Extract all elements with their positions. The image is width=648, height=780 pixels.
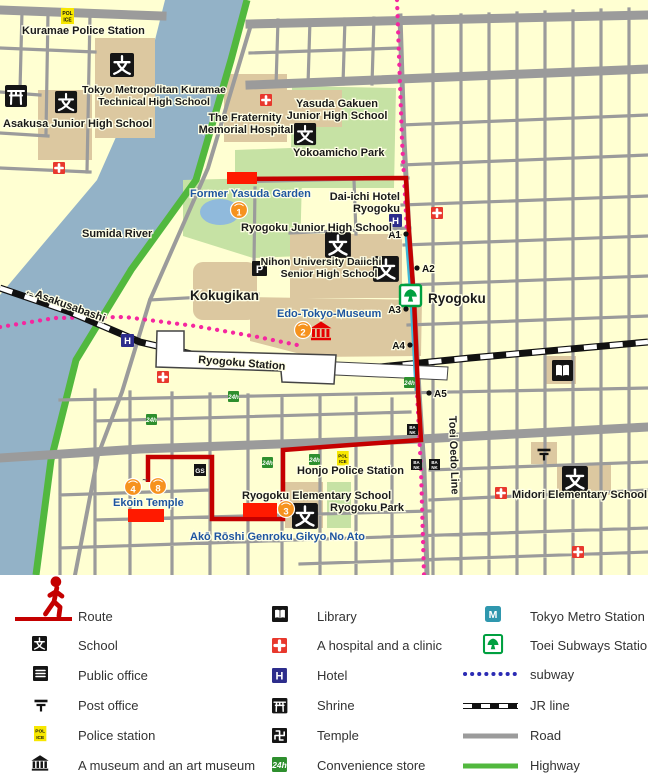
svg-text:4: 4	[130, 485, 136, 496]
legend-label-road: Road	[530, 728, 561, 743]
spot-marker-3: 3	[278, 501, 295, 518]
exit-dot-a3	[403, 306, 408, 311]
legend-label-subway: subway	[530, 667, 575, 682]
svg-text:8: 8	[155, 484, 160, 495]
label-fraternity-2: Memorial Hospital	[199, 124, 294, 136]
exit-label-a2: A2	[422, 264, 435, 275]
highlight-ekoin-temple	[128, 509, 164, 522]
legend-label-museum: A museum and an art museum	[78, 758, 255, 773]
label-ryogoku-toei: Ryogoku	[428, 291, 486, 306]
label-ryogoku-jhs: Ryogoku Junior High School	[241, 222, 392, 234]
svg-text:1: 1	[236, 208, 242, 219]
label-former-yasuda-garden: Former Yasuda Garden	[190, 188, 311, 200]
toei-station-icon	[484, 635, 502, 653]
shrine-icon	[5, 85, 27, 107]
spot-marker-2: 2	[295, 322, 312, 339]
label-kuramae-tech-1: Tokyo Metropolitan Kuramae	[82, 84, 226, 96]
hotel-icon	[121, 334, 134, 347]
label-asakusa-jhs: Asakusa Junior High School	[3, 118, 152, 130]
library-icon	[272, 606, 288, 622]
legend-label-metro: Tokyo Metro Station	[530, 609, 645, 624]
legend-label-jr: JR line	[530, 698, 570, 713]
school-icon	[55, 91, 77, 113]
police-station-icon	[61, 8, 74, 24]
label-yokoamicho-park: Yokoamicho Park	[293, 147, 385, 159]
legend-label-route: Route	[78, 609, 113, 624]
bank-icon	[411, 459, 422, 470]
school-icon	[292, 503, 318, 529]
exit-label-a3: A3	[388, 305, 401, 316]
legend-label-toei: Toei Subways Station	[530, 638, 648, 653]
spot-marker-1: 1	[231, 202, 248, 219]
school-icon	[110, 53, 134, 77]
hospital-icon	[53, 162, 65, 174]
label-yasuda-gakuen-2: Junior High School	[287, 110, 388, 122]
label-kuramae-police: Kuramae Police Station	[22, 25, 145, 37]
label-daiichi-hotel-1: Dai-ichi Hotel	[330, 191, 400, 203]
label-ryogoku-es: Ryogoku Elementary School	[242, 490, 391, 502]
exit-dot-a2	[414, 265, 419, 270]
exit-label-a5: A5	[434, 389, 447, 400]
highlight-yasuda-garden	[227, 172, 257, 184]
label-midori-es: Midori Elementary School	[512, 489, 647, 501]
label-ryogoku-park: Ryogoku Park	[330, 502, 405, 514]
legend-label-post-office: Post office	[78, 698, 138, 713]
legend-label-school: School	[78, 638, 118, 653]
route-line-sample	[15, 617, 72, 621]
spot-marker-4: 4	[125, 479, 142, 496]
bank-icon	[407, 424, 418, 435]
school-icon	[325, 232, 351, 258]
label-ekoin-temple: Ekoin Temple	[113, 497, 184, 509]
toei-station-icon	[400, 285, 421, 306]
school-icon	[294, 123, 316, 145]
hospital-icon	[572, 546, 584, 558]
legend-label-library: Library	[317, 609, 357, 624]
hotel-icon	[272, 668, 287, 683]
hospital-icon	[157, 371, 169, 383]
gas-station-icon	[194, 464, 206, 476]
temple-icon	[272, 728, 287, 743]
shrine-icon	[272, 698, 287, 713]
convenience-store-icon	[227, 391, 239, 402]
svg-text:3: 3	[283, 507, 288, 518]
tokyo-metro-icon	[485, 606, 501, 622]
exit-dot-a1	[403, 231, 408, 236]
convenience-store-icon	[403, 377, 415, 388]
label-edo-tokyo-museum: Edo-Tokyo-Museum	[277, 308, 382, 320]
ryogoku-walking-map: H POL ICE 24h BA NK P GS	[0, 0, 648, 780]
svg-text:2: 2	[300, 328, 305, 339]
label-fraternity-1: The Fraternity	[208, 112, 282, 124]
label-honjo-police: Honjo Police Station	[297, 465, 404, 477]
legend-label-hotel: Hotel	[317, 668, 347, 683]
legend-label-temple: Temple	[317, 728, 359, 743]
legend-label-hospital: A hospital and a clinic	[317, 638, 443, 653]
convenience-store-icon	[308, 454, 320, 465]
label-nihon-univ-2: Senior High School	[281, 268, 378, 280]
public-office-icon	[33, 666, 48, 681]
hospital-icon	[431, 207, 443, 219]
highlight-ako-roshi	[243, 503, 277, 517]
bank-icon	[429, 459, 440, 470]
convenience-store-icon	[261, 457, 273, 468]
police-station-icon	[34, 726, 46, 741]
police-station-icon	[337, 451, 349, 465]
exit-dot-a4	[407, 342, 412, 347]
map-canvas: H POL ICE 24h BA NK P GS	[0, 0, 648, 780]
label-nihon-univ-1: Nihon University Daiichi	[261, 256, 382, 268]
exit-dot-a5	[426, 390, 431, 395]
label-yasuda-gakuen-1: Yasuda Gakuen	[296, 98, 378, 110]
spot-marker-8: 8	[150, 478, 167, 495]
legend-label-police-station: Police station	[78, 728, 155, 743]
legend-label-highway: Highway	[530, 758, 580, 773]
legend-label-convenience: Convenience store	[317, 758, 425, 773]
label-daiichi-hotel-2: Ryogoku	[353, 203, 400, 215]
exit-label-a4: A4	[392, 341, 405, 352]
convenience-store-icon	[271, 757, 287, 772]
hospital-icon	[260, 94, 272, 106]
hospital-icon	[272, 638, 287, 653]
legend-label-shrine: Shrine	[317, 698, 355, 713]
label-ako-roshi: Akō Rōshi Genroku Gikyo No Ato	[190, 531, 365, 543]
spot-range-tilde: ~	[142, 475, 147, 485]
school-icon	[32, 636, 47, 651]
label-kuramae-tech-2: Technical High School	[98, 96, 210, 108]
label-sumida-river: Sumida River	[82, 228, 153, 240]
hospital-icon	[495, 487, 507, 499]
legend-label-public-office: Public office	[78, 668, 148, 683]
library-icon	[552, 360, 573, 381]
convenience-store-icon	[145, 414, 157, 425]
label-kokugikan: Kokugikan	[190, 288, 259, 303]
legend: Route School Public office Post office P…	[0, 575, 648, 780]
